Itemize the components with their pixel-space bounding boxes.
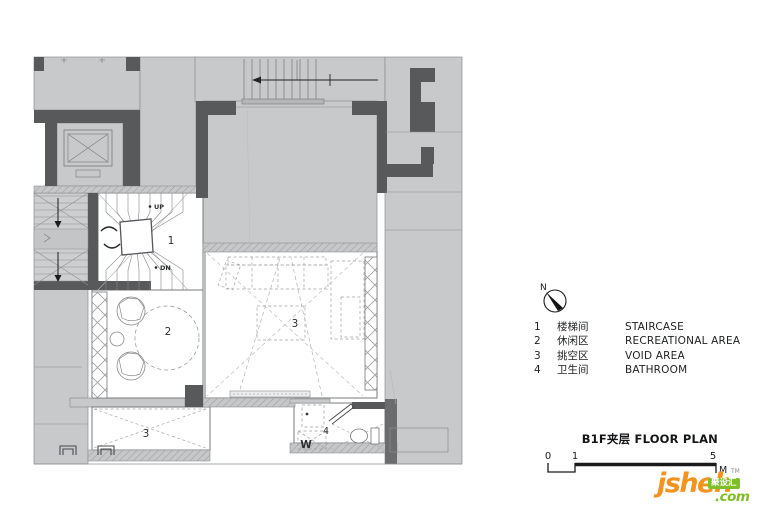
stair-up-label: UP	[154, 203, 164, 211]
legend-number: 1	[530, 321, 557, 333]
legend: 1 楼梯间 STAIRCASE 2 休闲区 RECREATIONAL AREA …	[530, 319, 745, 376]
legend-row: 2 休闲区 RECREATIONAL AREA	[530, 333, 745, 347]
scale-tick-5: 5	[710, 451, 716, 462]
legend-zh-label: 挑空区	[557, 348, 625, 363]
drawing-title: B1F夹层 FLOOR PLAN	[540, 431, 718, 447]
legend-en-label: BATHROOM	[625, 364, 745, 376]
room-label-staircase: 1	[168, 235, 175, 247]
legend-en-label: RECREATIONAL AREA	[625, 335, 745, 347]
north-arrow: N	[533, 276, 581, 324]
legend-number: 3	[530, 350, 557, 362]
legend-en-label: STAIRCASE	[625, 321, 745, 333]
legend-zh-label: 休闲区	[557, 333, 625, 348]
scale-tick-0: 0	[545, 451, 551, 462]
logo-tm-mark: TM	[731, 468, 740, 475]
legend-en-label: VOID AREA	[625, 350, 745, 362]
scale-tick-1: 1	[572, 451, 578, 462]
scale-bar-lower-segment	[548, 463, 575, 472]
legend-row: 3 挑空区 VOID AREA	[530, 348, 745, 362]
compass-north-label: N	[540, 283, 547, 293]
room-label-bathroom: 4	[323, 426, 329, 437]
room-label-recreation: 2	[165, 326, 172, 338]
room-label-void-lower: 3	[143, 428, 150, 440]
washer-label: W	[300, 439, 312, 451]
legend-zh-label: 楼梯间	[557, 319, 625, 334]
logo-tld-text: .com	[715, 489, 749, 505]
legend-row: 4 卫生间 BATHROOM	[530, 362, 745, 376]
legend-row: 1 楼梯间 STAIRCASE	[530, 319, 745, 333]
legend-zh-label: 卫生间	[557, 362, 625, 377]
page: { "plan": { "labels": { "staircase": "1"…	[0, 0, 760, 506]
legend-number: 4	[530, 364, 557, 376]
legend-number: 2	[530, 335, 557, 347]
logo-badge: 聚设汇	[708, 478, 740, 489]
room-label-void-center: 3	[292, 318, 299, 330]
compass-needle	[546, 292, 563, 311]
stair-down-label: DN	[160, 264, 171, 272]
logo: jsheh TM 聚设汇 .com	[655, 468, 760, 506]
